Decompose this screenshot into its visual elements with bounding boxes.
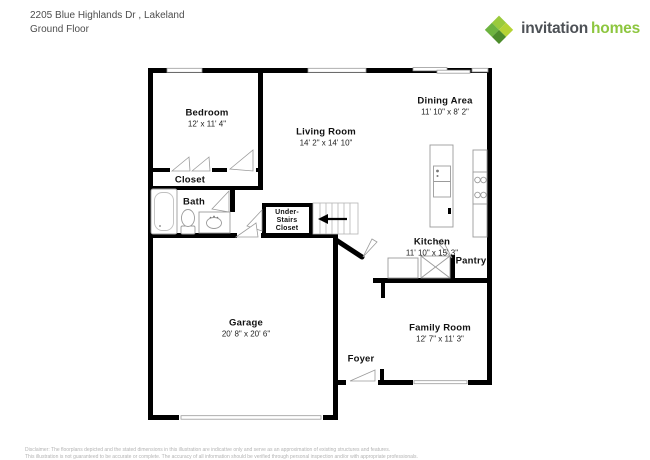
foyer-label: Foyer bbox=[348, 354, 375, 365]
family-room-window bbox=[414, 381, 467, 384]
dining-area-label: Dining Area 11' 10" x 8' 2" bbox=[417, 96, 472, 117]
closet-name: Closet bbox=[175, 175, 205, 186]
bedroom-name: Bedroom bbox=[185, 108, 228, 119]
wall-stub-foyer bbox=[380, 369, 384, 381]
kitchen-dims: 11' 10" x 15' 3" bbox=[406, 249, 458, 258]
garage-name: Garage bbox=[222, 318, 270, 329]
bath-name: Bath bbox=[183, 197, 205, 208]
floorplan-drawing bbox=[0, 0, 650, 460]
pantry-name: Pantry bbox=[456, 256, 487, 267]
garage-vehicle-door bbox=[181, 416, 321, 420]
bath-label: Bath bbox=[183, 197, 205, 208]
under-stairs-closet-label: Under- Stairs Closet bbox=[275, 209, 299, 233]
wall-garage-right bbox=[333, 238, 338, 420]
kitchen-entry-door-icon bbox=[363, 239, 377, 257]
bedroom-window bbox=[167, 68, 202, 72]
wall-bath-right bbox=[230, 190, 235, 212]
kitchen-label: Kitchen 11' 10" x 15' 3" bbox=[406, 237, 458, 258]
wall-angled-kitchen-entry bbox=[336, 240, 362, 257]
wall-understairs-top bbox=[262, 203, 313, 207]
family-room-label: Family Room 12' 7" x 11' 3" bbox=[409, 323, 471, 344]
closet-bifold-door-left bbox=[172, 157, 190, 171]
bath-door-icon bbox=[212, 191, 229, 212]
dining-area-name: Dining Area bbox=[417, 96, 472, 107]
kitchen-name: Kitchen bbox=[406, 237, 458, 248]
wall-pantry-left bbox=[450, 255, 455, 283]
dining-window-c bbox=[472, 68, 488, 72]
living-room-dims: 14' 2" x 14' 10" bbox=[296, 139, 356, 148]
wall-right bbox=[487, 68, 492, 385]
family-room-name: Family Room bbox=[409, 323, 471, 334]
closet-bifold-door-right bbox=[192, 157, 210, 171]
wall-understairs-left bbox=[262, 203, 266, 237]
disclaimer-line2: This illustration is not guaranteed to b… bbox=[25, 454, 585, 460]
bedroom-dims: 12' x 11' 4" bbox=[185, 120, 228, 129]
living-room-label: Living Room 14' 2" x 14' 10" bbox=[296, 127, 356, 148]
appliance-icon bbox=[421, 256, 450, 278]
wall-stub-family bbox=[381, 283, 385, 298]
kitchen-counter-bottom bbox=[388, 258, 418, 278]
disclaimer-line1: Disclaimer: The floorplans depicted and … bbox=[25, 447, 585, 453]
front-door-icon bbox=[350, 370, 375, 381]
stairs bbox=[313, 203, 358, 234]
dining-window-b bbox=[437, 70, 470, 73]
pantry-label: Pantry bbox=[456, 256, 487, 267]
closet-label: Closet bbox=[175, 175, 205, 186]
bathroom-sink-icon bbox=[199, 212, 230, 233]
stove-icon bbox=[473, 172, 487, 204]
living-room-window bbox=[308, 68, 366, 72]
kitchen-island bbox=[430, 145, 453, 227]
garage-entry-door-icon bbox=[236, 223, 258, 237]
wall-left bbox=[148, 68, 153, 420]
garage-label: Garage 20' 8" x 20' 6" bbox=[222, 318, 270, 339]
dining-area-dims: 11' 10" x 8' 2" bbox=[417, 108, 472, 117]
floorplan-page: 2205 Blue Highlands Dr , Lakeland Ground… bbox=[0, 0, 650, 460]
garage-dims: 20' 8" x 20' 6" bbox=[222, 330, 270, 339]
family-room-dims: 12' 7" x 11' 3" bbox=[409, 335, 471, 344]
bedroom-label: Bedroom 12' x 11' 4" bbox=[185, 108, 228, 129]
living-room-name: Living Room bbox=[296, 127, 356, 138]
under-stairs-closet-name: Under- Stairs Closet bbox=[275, 209, 299, 233]
wall-understairs-right bbox=[309, 203, 313, 237]
bathtub-icon bbox=[151, 189, 177, 234]
bedroom-door-icon bbox=[230, 150, 253, 171]
wall-kitchen-family bbox=[373, 278, 492, 283]
toilet-icon bbox=[181, 210, 195, 235]
foyer-name: Foyer bbox=[348, 354, 375, 365]
